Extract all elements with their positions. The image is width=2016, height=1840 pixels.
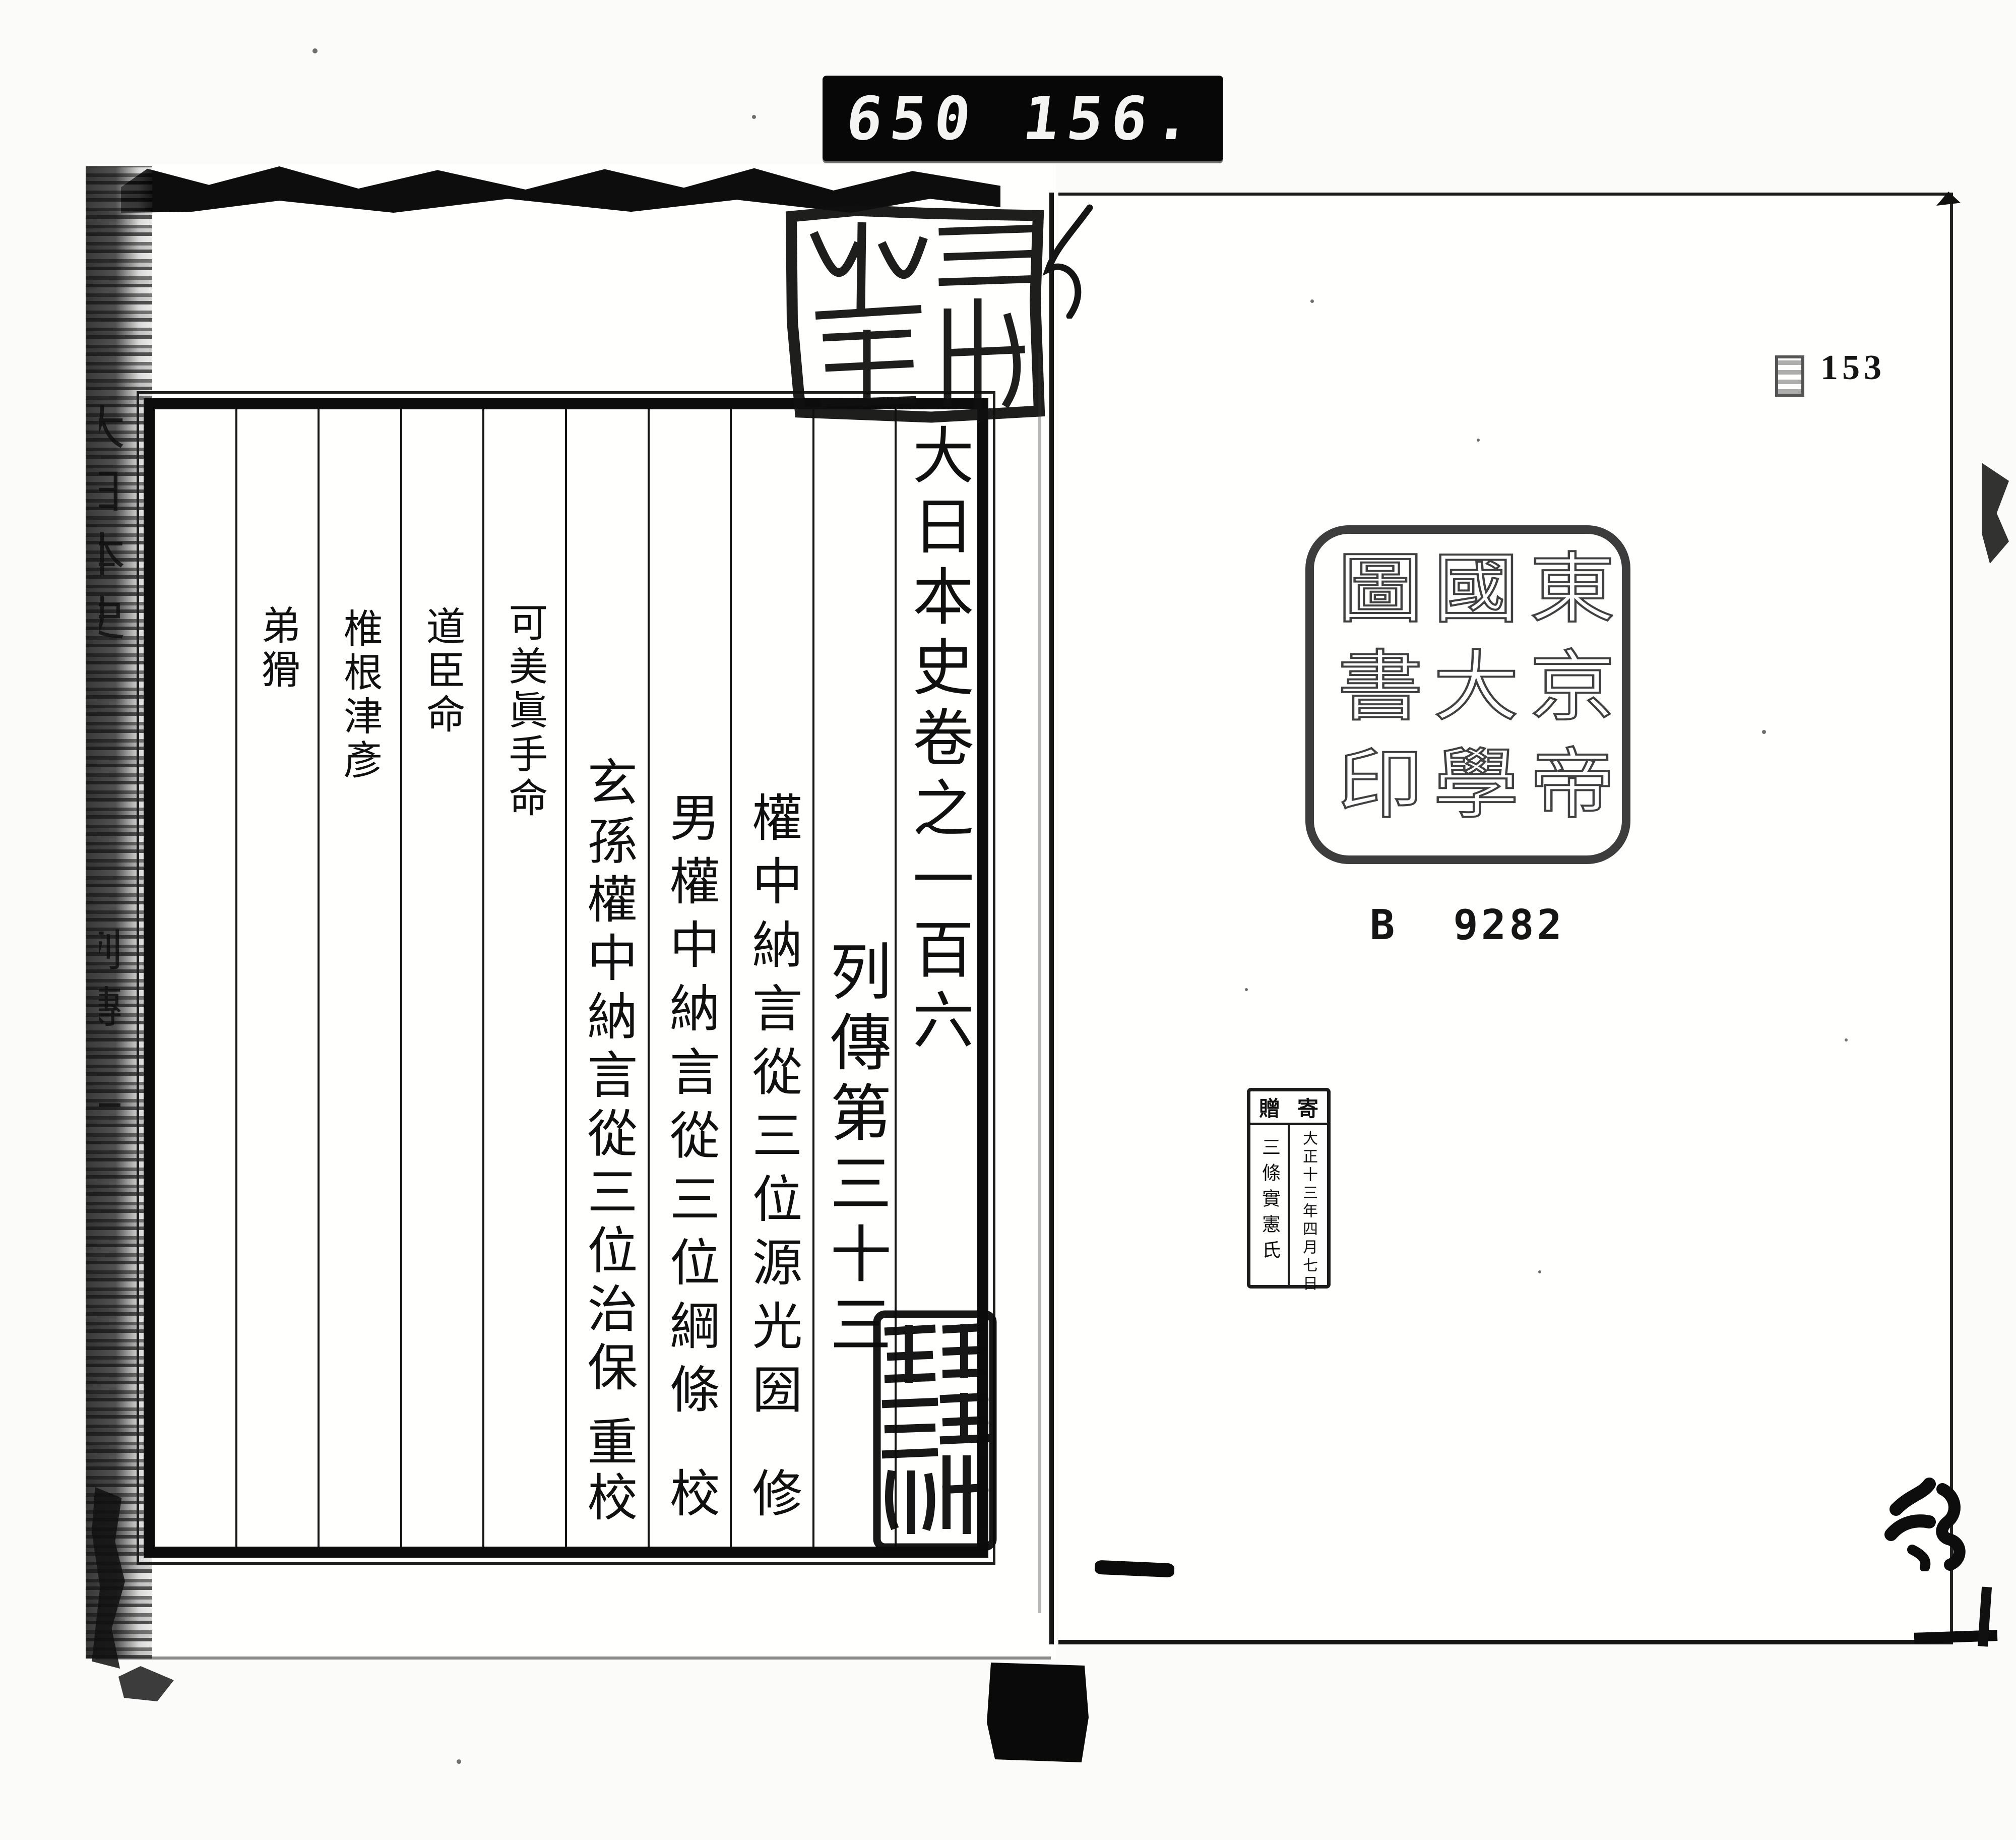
editor-name: 權中納言從三位源光圀 [747,791,797,1427]
donation-stamp: 寄 贈 大正十三年四月七日 三條實憲氏 [1247,1088,1331,1289]
page-gutter-shadow [1038,353,1041,1613]
editor-role: 重校 [582,1416,633,1526]
book-spine-shadow [86,166,152,1659]
editor-role: 校 [664,1467,715,1522]
donation-date: 大正十三年四月七日 [1301,1130,1316,1289]
dust-speck [1245,988,1248,991]
dust-speck [1538,1270,1541,1273]
donation-date-column: 大正十三年四月七日 [1288,1125,1327,1289]
seal-column-left: 圖書印 [1329,548,1415,841]
page-number: 153 [1820,348,1885,388]
dust-speck [1762,730,1766,734]
column-subject-4: 弟猾 [237,409,320,1547]
large-ink-seal-icon [780,200,1050,425]
seal-column-right: 東京帝 [1521,548,1607,841]
spine-fragment-text: 大日本史 [99,403,121,657]
dust-speck [312,48,318,53]
book-scan: 650 156. 大日本史 列傳 一 大日本史卷之一百六 列傳第三十三 權中納言… [0,0,2016,1840]
counter-left-digits: 650 [843,84,983,153]
spine-fragment-text: 列傳 [99,928,118,1040]
subject-name: 椎根津彥 [340,608,380,783]
book-title: 大日本史卷之一百六 [906,423,968,1059]
column-editor-2: 男權中納言從三位綱條 校 [650,409,732,1547]
handwritten-scribble [1881,1473,1984,1571]
small-inspection-stamp-icon [1775,355,1804,397]
section-heading: 列傳第三十三 [824,940,886,1363]
page-gutter [1049,193,1054,1644]
ink-smudge [118,1666,174,1701]
university-library-seal: 東京帝 國大學 圖書印 [1305,525,1630,864]
donation-stamp-body: 大正十三年四月七日 三條實憲氏 [1250,1125,1327,1289]
dust-speck [1477,439,1480,442]
column-editor-3: 玄孫權中納言從三位治保 重校 [567,409,650,1547]
donation-stamp-header: 寄 贈 [1250,1091,1327,1125]
donation-donor: 三條實憲氏 [1260,1137,1279,1289]
dust-speck [1310,299,1314,303]
editor-name: 男權中納言從三位綱條 [664,791,715,1427]
call-number: B 9282 [1370,901,1565,949]
column-empty [155,409,237,1547]
editor-role: 修 [747,1467,797,1522]
subject-name: 弟猾 [258,605,297,693]
left-page-bottom-edge [96,1657,1051,1660]
donation-header-char: 寄 [1297,1092,1318,1123]
column-editor-1: 權中納言從三位源光圀 修 [732,409,814,1547]
editor-name: 玄孫權中納言從三位治保 [582,756,633,1399]
dust-speck [752,115,756,119]
column-subject-3: 椎根津彥 [320,409,402,1547]
dust-speck [457,1759,461,1764]
column-subject-1: 可美眞手命 [484,409,567,1547]
donation-donor-column: 三條實憲氏 [1250,1125,1288,1289]
column-subject-2: 道臣命 [402,409,485,1547]
gutter-ink-blob [987,1663,1089,1762]
donation-header-char: 贈 [1259,1092,1280,1123]
subject-name: 道臣命 [423,606,462,738]
margin-ink-blob [1982,463,2009,564]
text-frame: 大日本史卷之一百六 列傳第三十三 權中納言從三位源光圀 修 男權中納言從三位綱條… [144,398,988,1558]
dust-speck [1845,1038,1848,1041]
spine-fragment-text: 一 [99,1084,118,1127]
handwritten-hook-mark [1039,203,1110,319]
call-number-digits: 9282 [1453,901,1564,949]
subject-name: 可美眞手命 [505,602,544,821]
film-frame-counter: 650 156. [823,76,1223,161]
seal-column-middle: 國大學 [1425,548,1510,841]
library-accession-seal-icon [871,1308,999,1556]
counter-right-digits: 156. [1019,84,1203,153]
call-number-prefix: B [1370,901,1398,949]
